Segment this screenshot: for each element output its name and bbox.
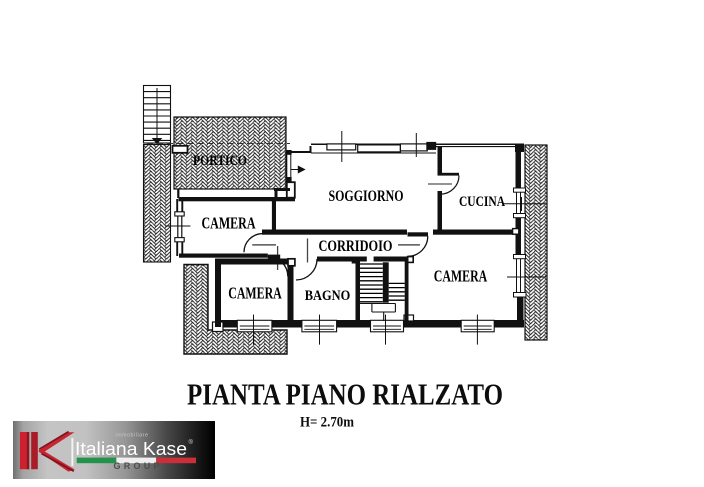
svg-text:CAMERA: CAMERA [434, 267, 488, 286]
svg-text:®: ® [189, 439, 194, 446]
svg-text:immobiliare: immobiliare [115, 433, 148, 439]
svg-text:SOGGIORNO: SOGGIORNO [329, 188, 404, 205]
svg-text:GROUP: GROUP [114, 461, 160, 471]
svg-text:PIANTA PIANO RIALZATO: PIANTA PIANO RIALZATO [187, 377, 503, 412]
svg-text:H= 2.70m: H= 2.70m [300, 415, 354, 431]
svg-text:CAMERA: CAMERA [202, 214, 257, 233]
svg-text:PORTICO: PORTICO [193, 153, 247, 169]
svg-text:BAGNO: BAGNO [305, 288, 351, 304]
svg-text:CORRIDOIO: CORRIDOIO [319, 238, 393, 255]
svg-text:Italiana Kase: Italiana Kase [75, 439, 187, 459]
svg-text:CAMERA: CAMERA [228, 284, 282, 303]
svg-text:CUCINA: CUCINA [459, 194, 505, 210]
